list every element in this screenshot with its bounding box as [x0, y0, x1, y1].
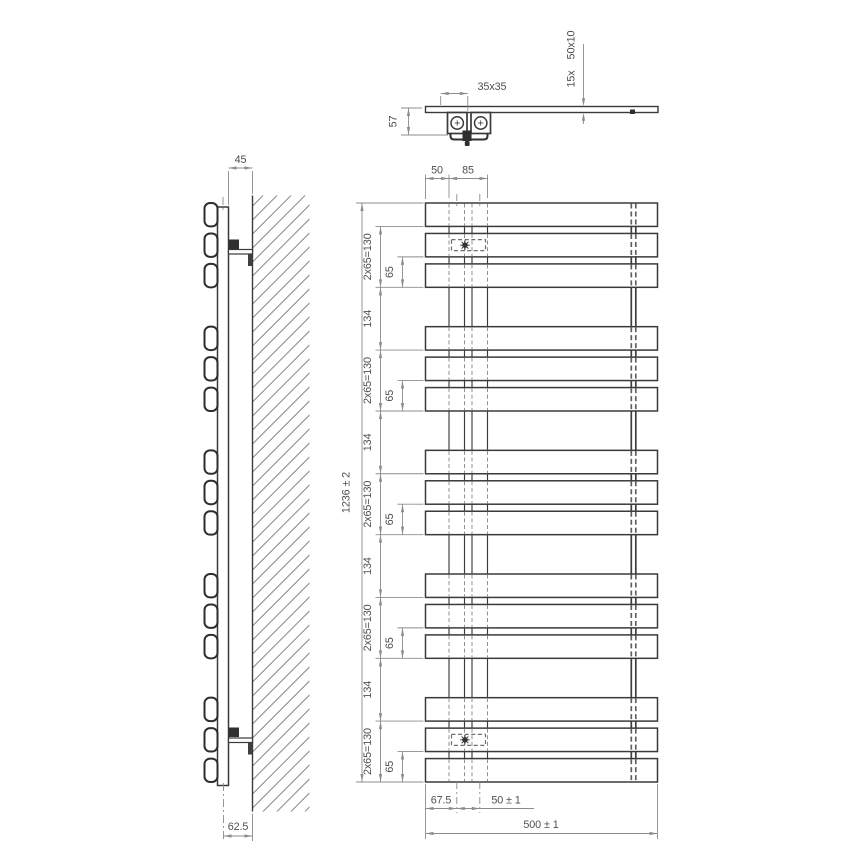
tube-end — [205, 635, 218, 658]
dim-label-edge-to-pipe: 67.5 — [431, 795, 452, 807]
tube-bar — [426, 388, 658, 411]
dim-bottom: 67.550 ± 1500 ± 1 — [426, 784, 658, 839]
tube-bars — [426, 203, 658, 782]
tube-end — [205, 203, 218, 226]
dim-label-tube-group: 2x65=130 — [362, 604, 374, 651]
tube-end — [205, 357, 218, 380]
dim-label-tube-group: 2x65=130 — [362, 728, 374, 775]
dim-label-collector-span: 85 — [462, 165, 474, 177]
dim-label-tube-profile: 50x10 — [566, 30, 578, 59]
tube-end — [205, 511, 218, 534]
tube-bar — [426, 759, 658, 782]
tube-end — [205, 233, 218, 256]
tube-bar — [426, 481, 658, 504]
tube-bar — [426, 450, 658, 473]
tube-bar — [426, 604, 658, 627]
tube-end — [205, 604, 218, 627]
dim-label-tube-pitch: 65 — [384, 390, 396, 402]
dim-label-tube-group: 2x65=130 — [362, 481, 374, 528]
bracket-clamp — [229, 240, 239, 250]
dim-label-tube-pitch: 65 — [384, 513, 396, 525]
tube-ends — [205, 203, 218, 782]
dim-wall-distance: 45 — [229, 154, 253, 205]
dim-label-tube-count: 15x — [566, 70, 578, 88]
collector-panel-side — [218, 207, 229, 786]
drawing-page: 35x355715x50x104562.550851236 ± 22x65=13… — [0, 0, 868, 868]
dim-mount-depth: 62.5 — [224, 814, 253, 842]
tube-bar — [426, 357, 658, 380]
side-view: 4562.5 — [205, 147, 313, 868]
bracket-arm — [229, 738, 253, 743]
top-view: 35x355715x50x10 — [388, 30, 659, 146]
dim-tube-pitch: 6565656565 — [384, 257, 424, 782]
bracket-wall-plate — [248, 254, 253, 266]
bracket-screw-tip — [465, 141, 470, 146]
wall-bracket-side-top — [229, 240, 253, 267]
dim-label-tube-pitch: 65 — [384, 266, 396, 278]
tube-bar — [426, 511, 658, 534]
dim-label-group-gap: 134 — [362, 557, 374, 575]
tube-end — [205, 264, 218, 287]
tube-bar — [426, 264, 658, 287]
bracket-clamp — [229, 728, 239, 738]
wall-bracket-side-bottom — [229, 728, 253, 755]
dim-label-tube-pitch: 65 — [384, 637, 396, 649]
dim-label-tube-group: 2x65=130 — [362, 357, 374, 404]
tube-bar — [426, 203, 658, 226]
dim-label-tube-pitch: 65 — [384, 761, 396, 773]
dim-label-group-gap: 134 — [362, 433, 374, 451]
bracket-wall-plate — [248, 743, 253, 755]
dim-label-connector-size: 35x35 — [478, 81, 507, 93]
dim-label-group-gap: 134 — [362, 681, 374, 699]
dim-label-overall-width: 500 ± 1 — [523, 819, 558, 831]
tube-end — [205, 450, 218, 473]
tube-bar — [426, 574, 658, 597]
tube-end — [205, 388, 218, 411]
dim-label-tube-group: 2x65=130 — [362, 233, 374, 280]
wall-hatching — [253, 147, 313, 868]
tube-end — [205, 759, 218, 782]
dim-label-overall-height: 1236 ± 2 — [341, 472, 353, 513]
dim-label-pipe-spacing: 50 ± 1 — [491, 795, 520, 807]
bracket-screw-top-view — [463, 131, 472, 142]
dim-label-wall-distance: 45 — [235, 154, 247, 166]
front-view: 50851236 ± 22x65=1301342x65=1301342x65=1… — [341, 165, 658, 840]
dim-label-edge-to-collector: 50 — [431, 165, 443, 177]
radiator-technical-drawing: 35x355715x50x104562.550851236 ± 22x65=13… — [0, 0, 868, 868]
tube-end — [205, 481, 218, 504]
dim-label-group-gap: 134 — [362, 310, 374, 328]
dim-label-mount-depth: 62.5 — [228, 821, 249, 833]
panel-top-view — [426, 107, 659, 113]
dim-label-depth-57: 57 — [388, 116, 400, 128]
tube-end — [205, 327, 218, 350]
dim-top-offsets: 5085 — [426, 165, 488, 200]
tube-bar — [426, 327, 658, 350]
tube-end — [205, 698, 218, 721]
tube-end — [205, 574, 218, 597]
tube-bar — [426, 698, 658, 721]
bracket-arm — [229, 250, 253, 255]
dim-overall-height: 1236 ± 2 — [341, 203, 424, 782]
tube-end — [205, 728, 218, 751]
right-channel-mark — [630, 110, 635, 115]
tube-bar — [426, 635, 658, 658]
